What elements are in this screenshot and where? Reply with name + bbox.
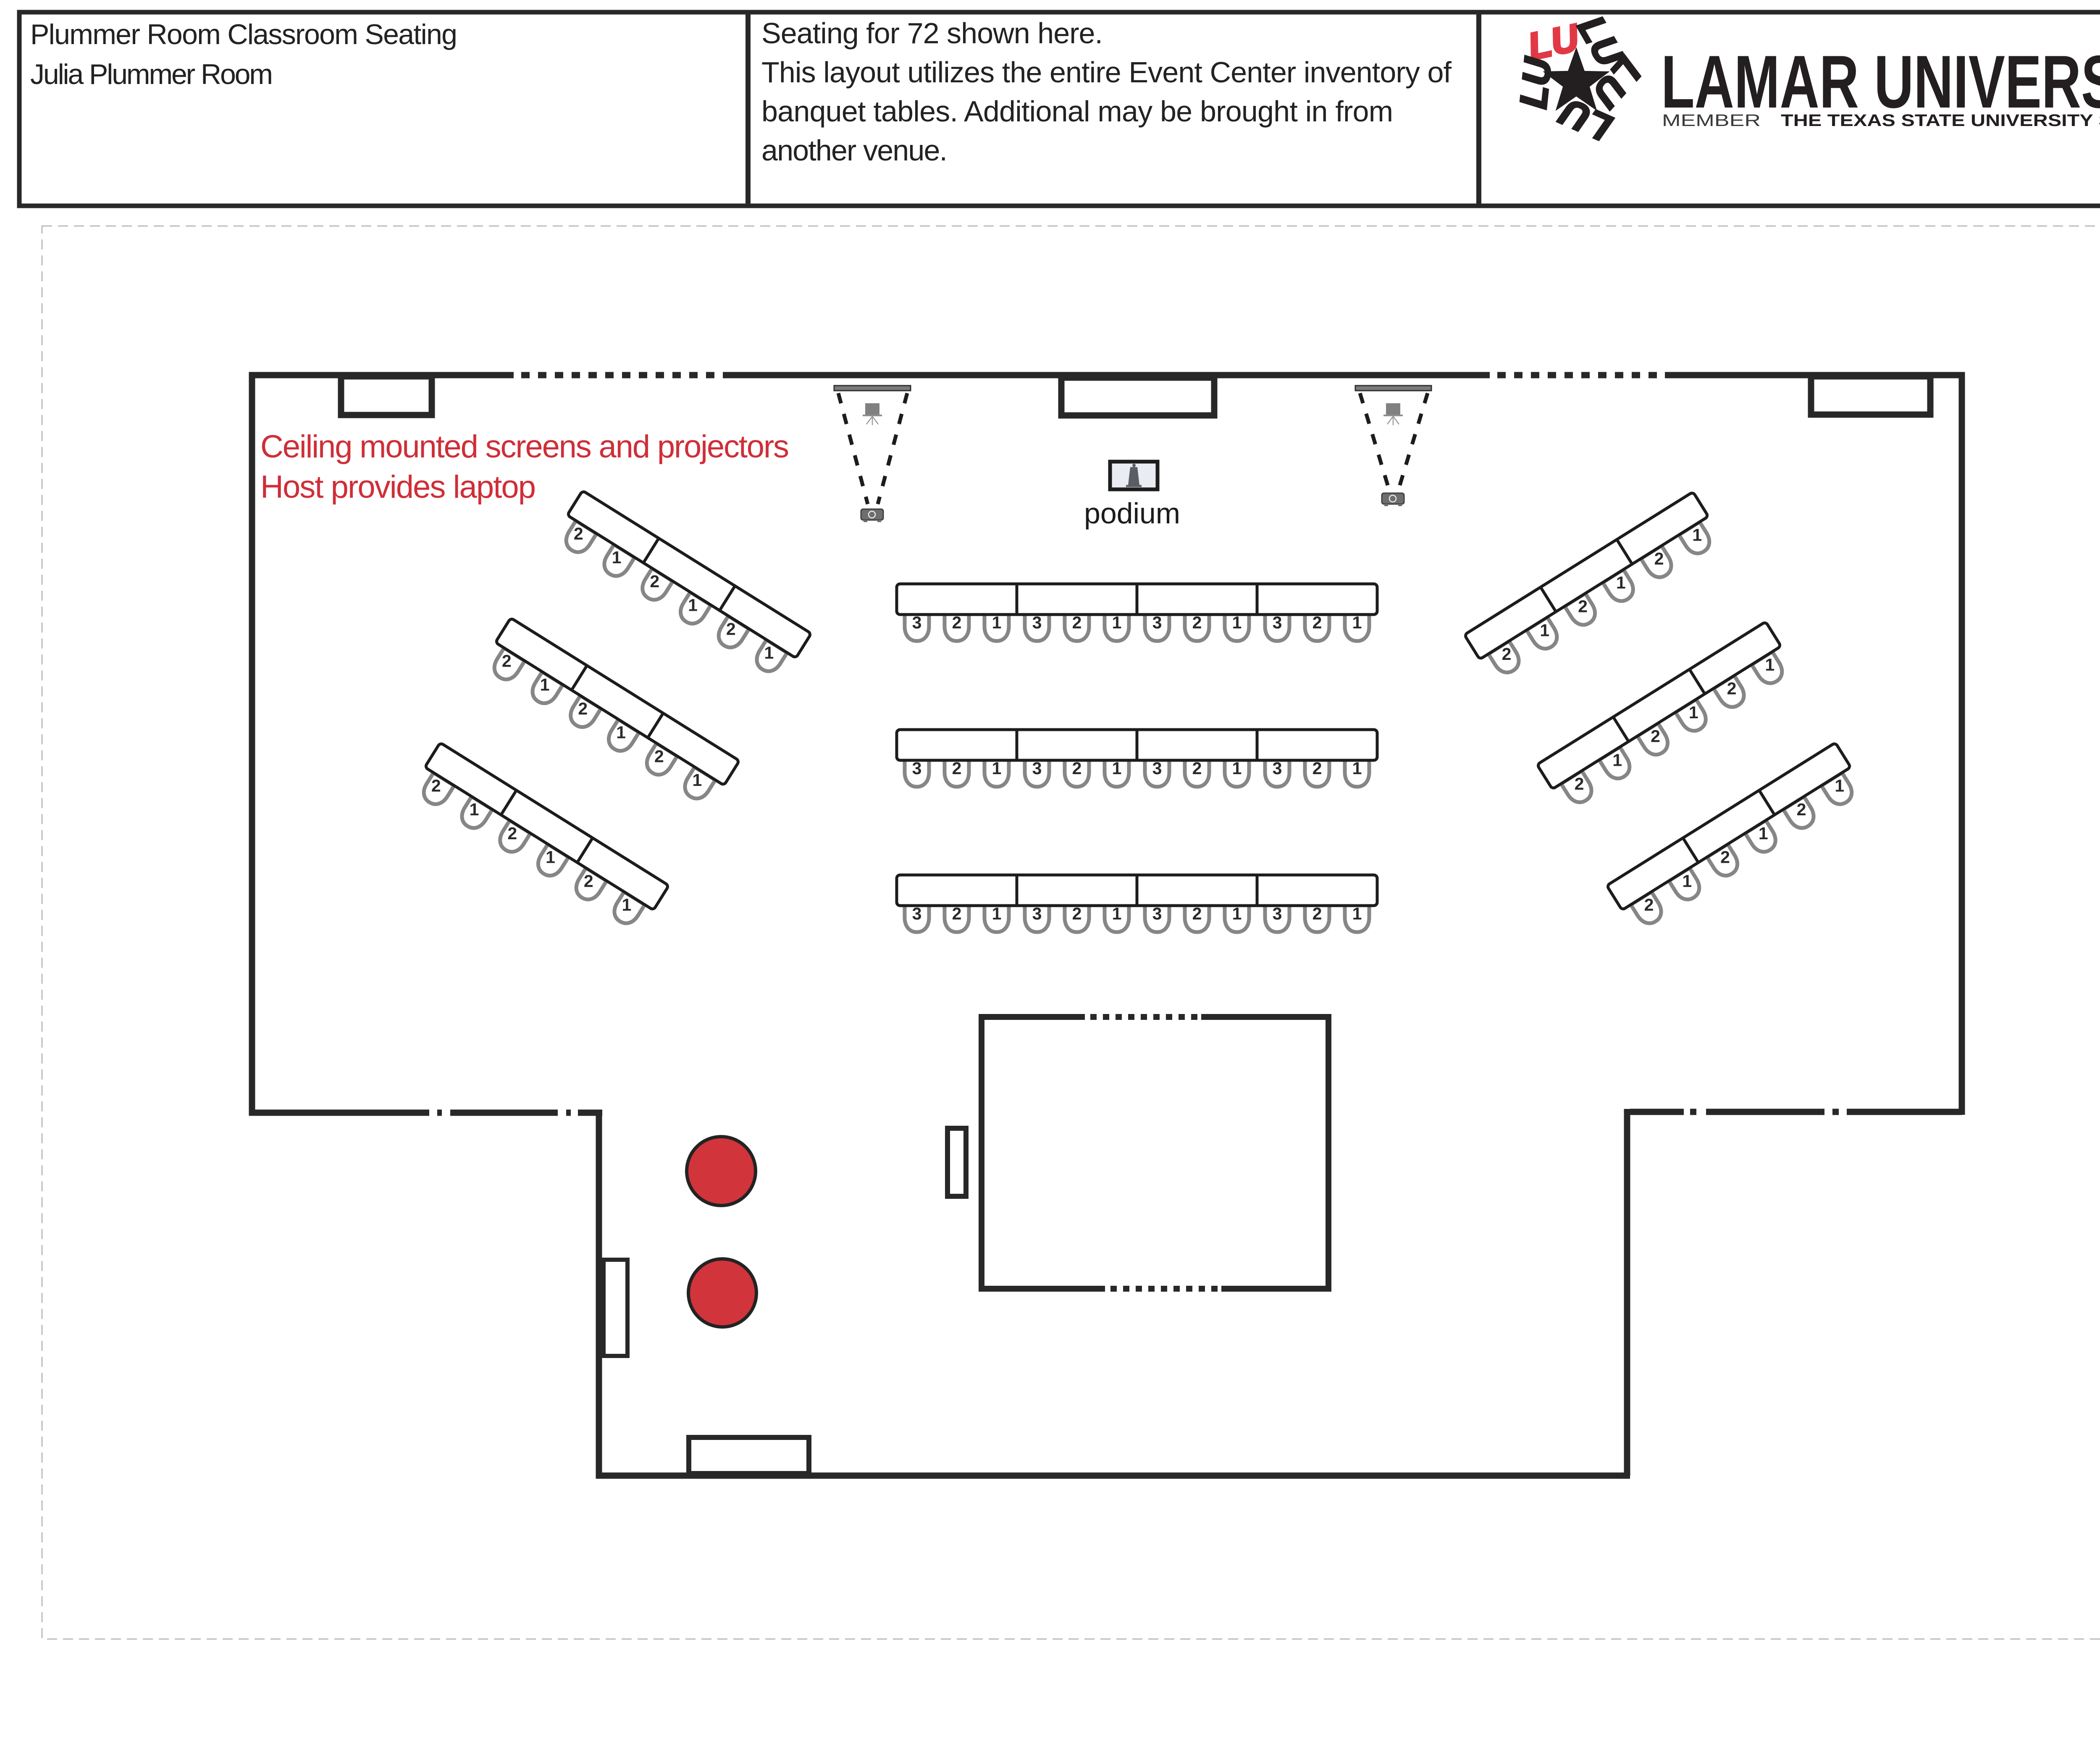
svg-text:podium: podium: [1084, 497, 1180, 530]
svg-text:1: 1: [616, 723, 626, 742]
svg-text:2: 2: [1644, 895, 1654, 914]
svg-text:2: 2: [1502, 644, 1512, 664]
svg-text:1: 1: [1689, 703, 1698, 722]
svg-text:2: 2: [1727, 679, 1737, 698]
svg-text:2: 2: [654, 746, 664, 766]
svg-text:2: 2: [650, 572, 659, 591]
svg-text:THE TEXAS STATE UNIVERSITY SYS: THE TEXAS STATE UNIVERSITY SYSTEM™: [1781, 111, 2100, 130]
svg-text:1: 1: [693, 770, 702, 790]
svg-text:1: 1: [1835, 776, 1844, 796]
svg-text:1: 1: [1612, 750, 1622, 770]
svg-text:LU: LU: [1512, 55, 1559, 110]
svg-text:Plummer Room Classroom Seating: Plummer Room Classroom Seating: [30, 18, 457, 50]
svg-text:Seating for 72 shown here.: Seating for 72 shown here.: [761, 17, 1103, 50]
svg-text:1: 1: [1692, 525, 1702, 545]
svg-text:Julia Plummer Room: Julia Plummer Room: [30, 58, 273, 90]
svg-text:2: 2: [1654, 549, 1664, 568]
svg-text:2: 2: [1651, 727, 1660, 746]
svg-text:1: 1: [540, 675, 550, 694]
svg-text:1: 1: [1682, 871, 1692, 891]
svg-text:This layout utilizes the entir: This layout utilizes the entire Event Ce…: [761, 56, 1452, 89]
svg-text:2: 2: [1575, 774, 1584, 793]
svg-text:Host provides laptop: Host provides laptop: [260, 469, 536, 505]
svg-text:another venue.: another venue.: [761, 134, 948, 167]
svg-text:1: 1: [688, 596, 698, 615]
svg-text:MEMBER: MEMBER: [1662, 111, 1761, 130]
svg-text:1: 1: [764, 643, 774, 662]
svg-text:Ceiling mounted screens and pr: Ceiling mounted screens and projectors: [260, 429, 789, 465]
svg-text:2: 2: [502, 651, 512, 671]
svg-text:2: 2: [726, 619, 736, 638]
svg-text:1: 1: [612, 548, 622, 567]
svg-text:1: 1: [1540, 620, 1549, 640]
svg-text:2: 2: [431, 776, 441, 796]
svg-text:1: 1: [1765, 655, 1774, 675]
svg-text:1: 1: [622, 895, 632, 914]
svg-text:2: 2: [578, 699, 588, 718]
svg-text:banquet tables. Additional may: banquet tables. Additional may be brough…: [761, 95, 1393, 128]
svg-text:1: 1: [1759, 824, 1768, 843]
svg-text:1: 1: [470, 800, 479, 819]
svg-text:2: 2: [1720, 848, 1730, 867]
svg-text:2: 2: [507, 824, 517, 843]
svg-text:2: 2: [1578, 597, 1588, 616]
svg-text:2: 2: [574, 524, 583, 544]
svg-text:2: 2: [1797, 800, 1806, 819]
svg-text:2: 2: [584, 871, 593, 891]
svg-text:1: 1: [546, 848, 555, 867]
svg-text:1: 1: [1616, 573, 1626, 592]
